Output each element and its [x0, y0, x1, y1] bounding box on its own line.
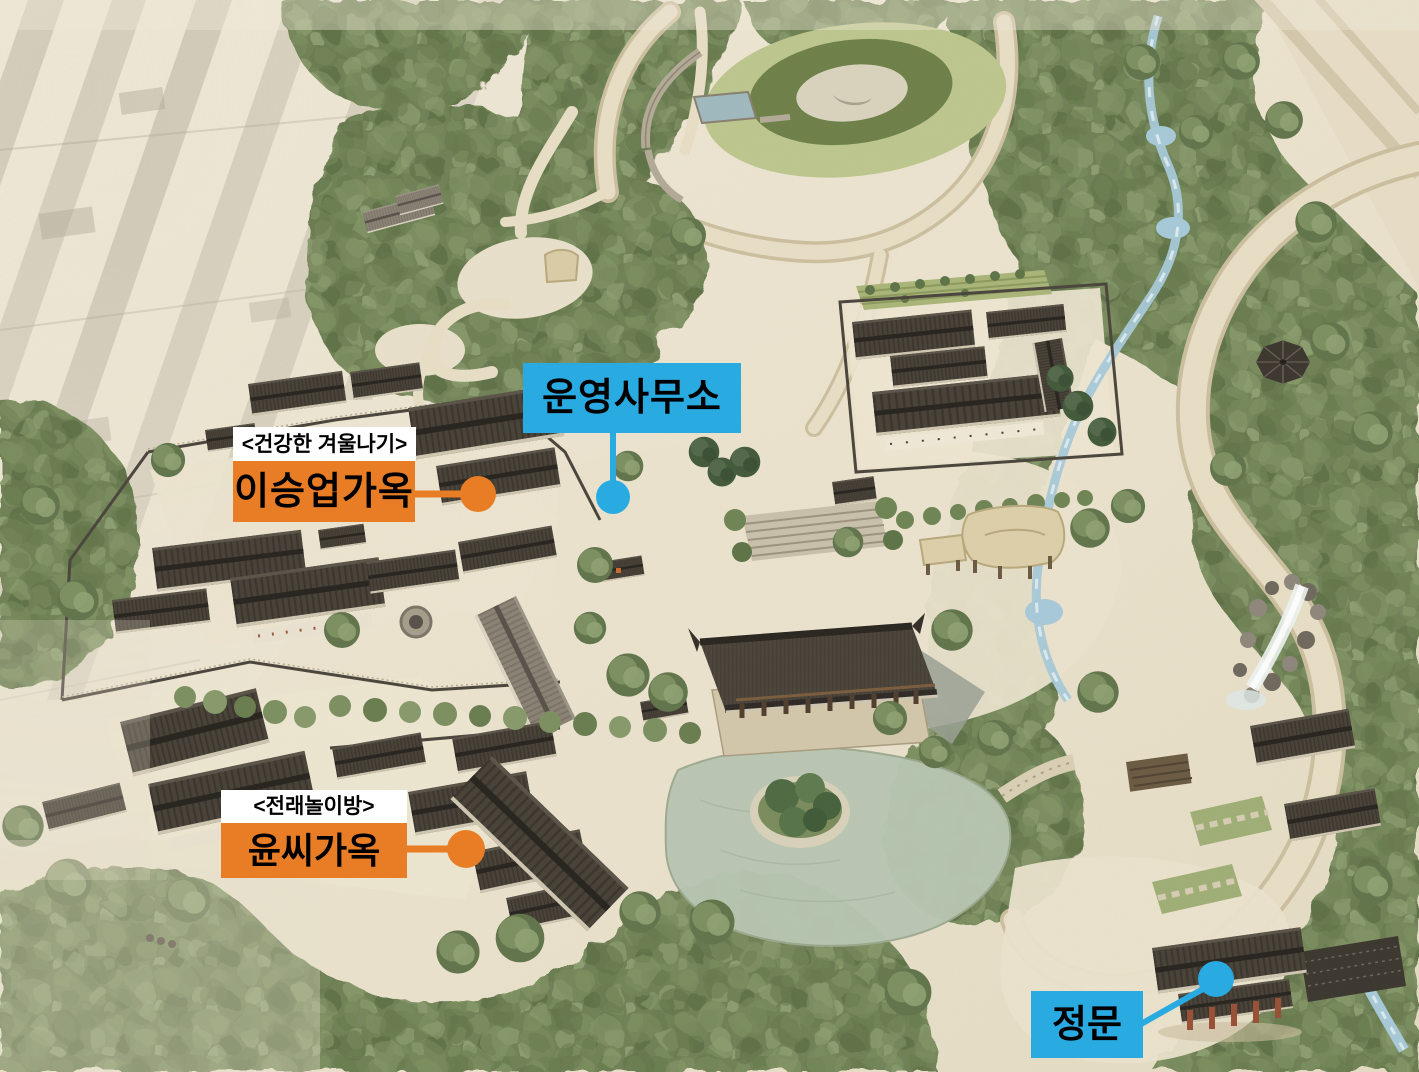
- callout-operations-office-label: 운영사무소: [542, 379, 722, 417]
- callout-lee-seungup-house-tag: <건강한 겨울나기>: [233, 427, 416, 461]
- hanok-village-map: 운영사무소 <건강한 겨울나기> 이승업가옥 <전래놀이방> 윤씨가옥 정문: [0, 0, 1419, 1072]
- callout-lee-seungup-house: 이승업가옥: [233, 461, 415, 522]
- callout-yoon-family-house-label: 윤씨가옥: [248, 833, 380, 869]
- map-illustration: [0, 0, 1419, 1072]
- paper-grain: [0, 0, 1419, 1072]
- callout-operations-office: 운영사무소: [523, 363, 741, 433]
- callout-lee-seungup-house-label: 이승업가옥: [234, 473, 414, 511]
- callout-yoon-family-house-tag-label: <전래놀이방>: [253, 796, 374, 817]
- callout-main-gate-label: 정문: [1052, 1006, 1122, 1044]
- callout-lee-seungup-house-tag-label: <건강한 겨울나기>: [242, 434, 408, 455]
- callout-yoon-family-house: 윤씨가옥: [221, 823, 407, 878]
- callout-main-gate: 정문: [1031, 991, 1143, 1058]
- callout-yoon-family-house-tag: <전래놀이방>: [221, 790, 407, 823]
